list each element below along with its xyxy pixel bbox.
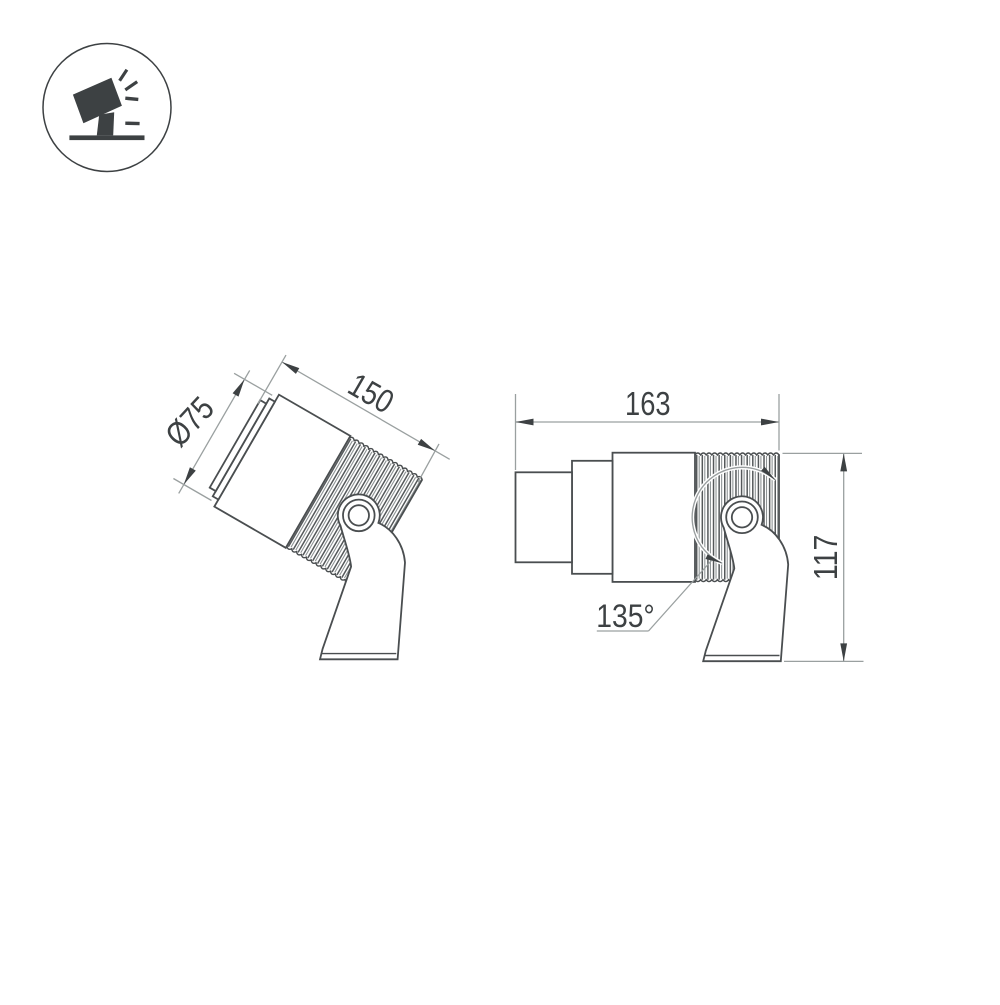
svg-text:163: 163 xyxy=(625,385,671,422)
svg-text:117: 117 xyxy=(807,535,844,581)
svg-text:135°: 135° xyxy=(596,598,655,634)
